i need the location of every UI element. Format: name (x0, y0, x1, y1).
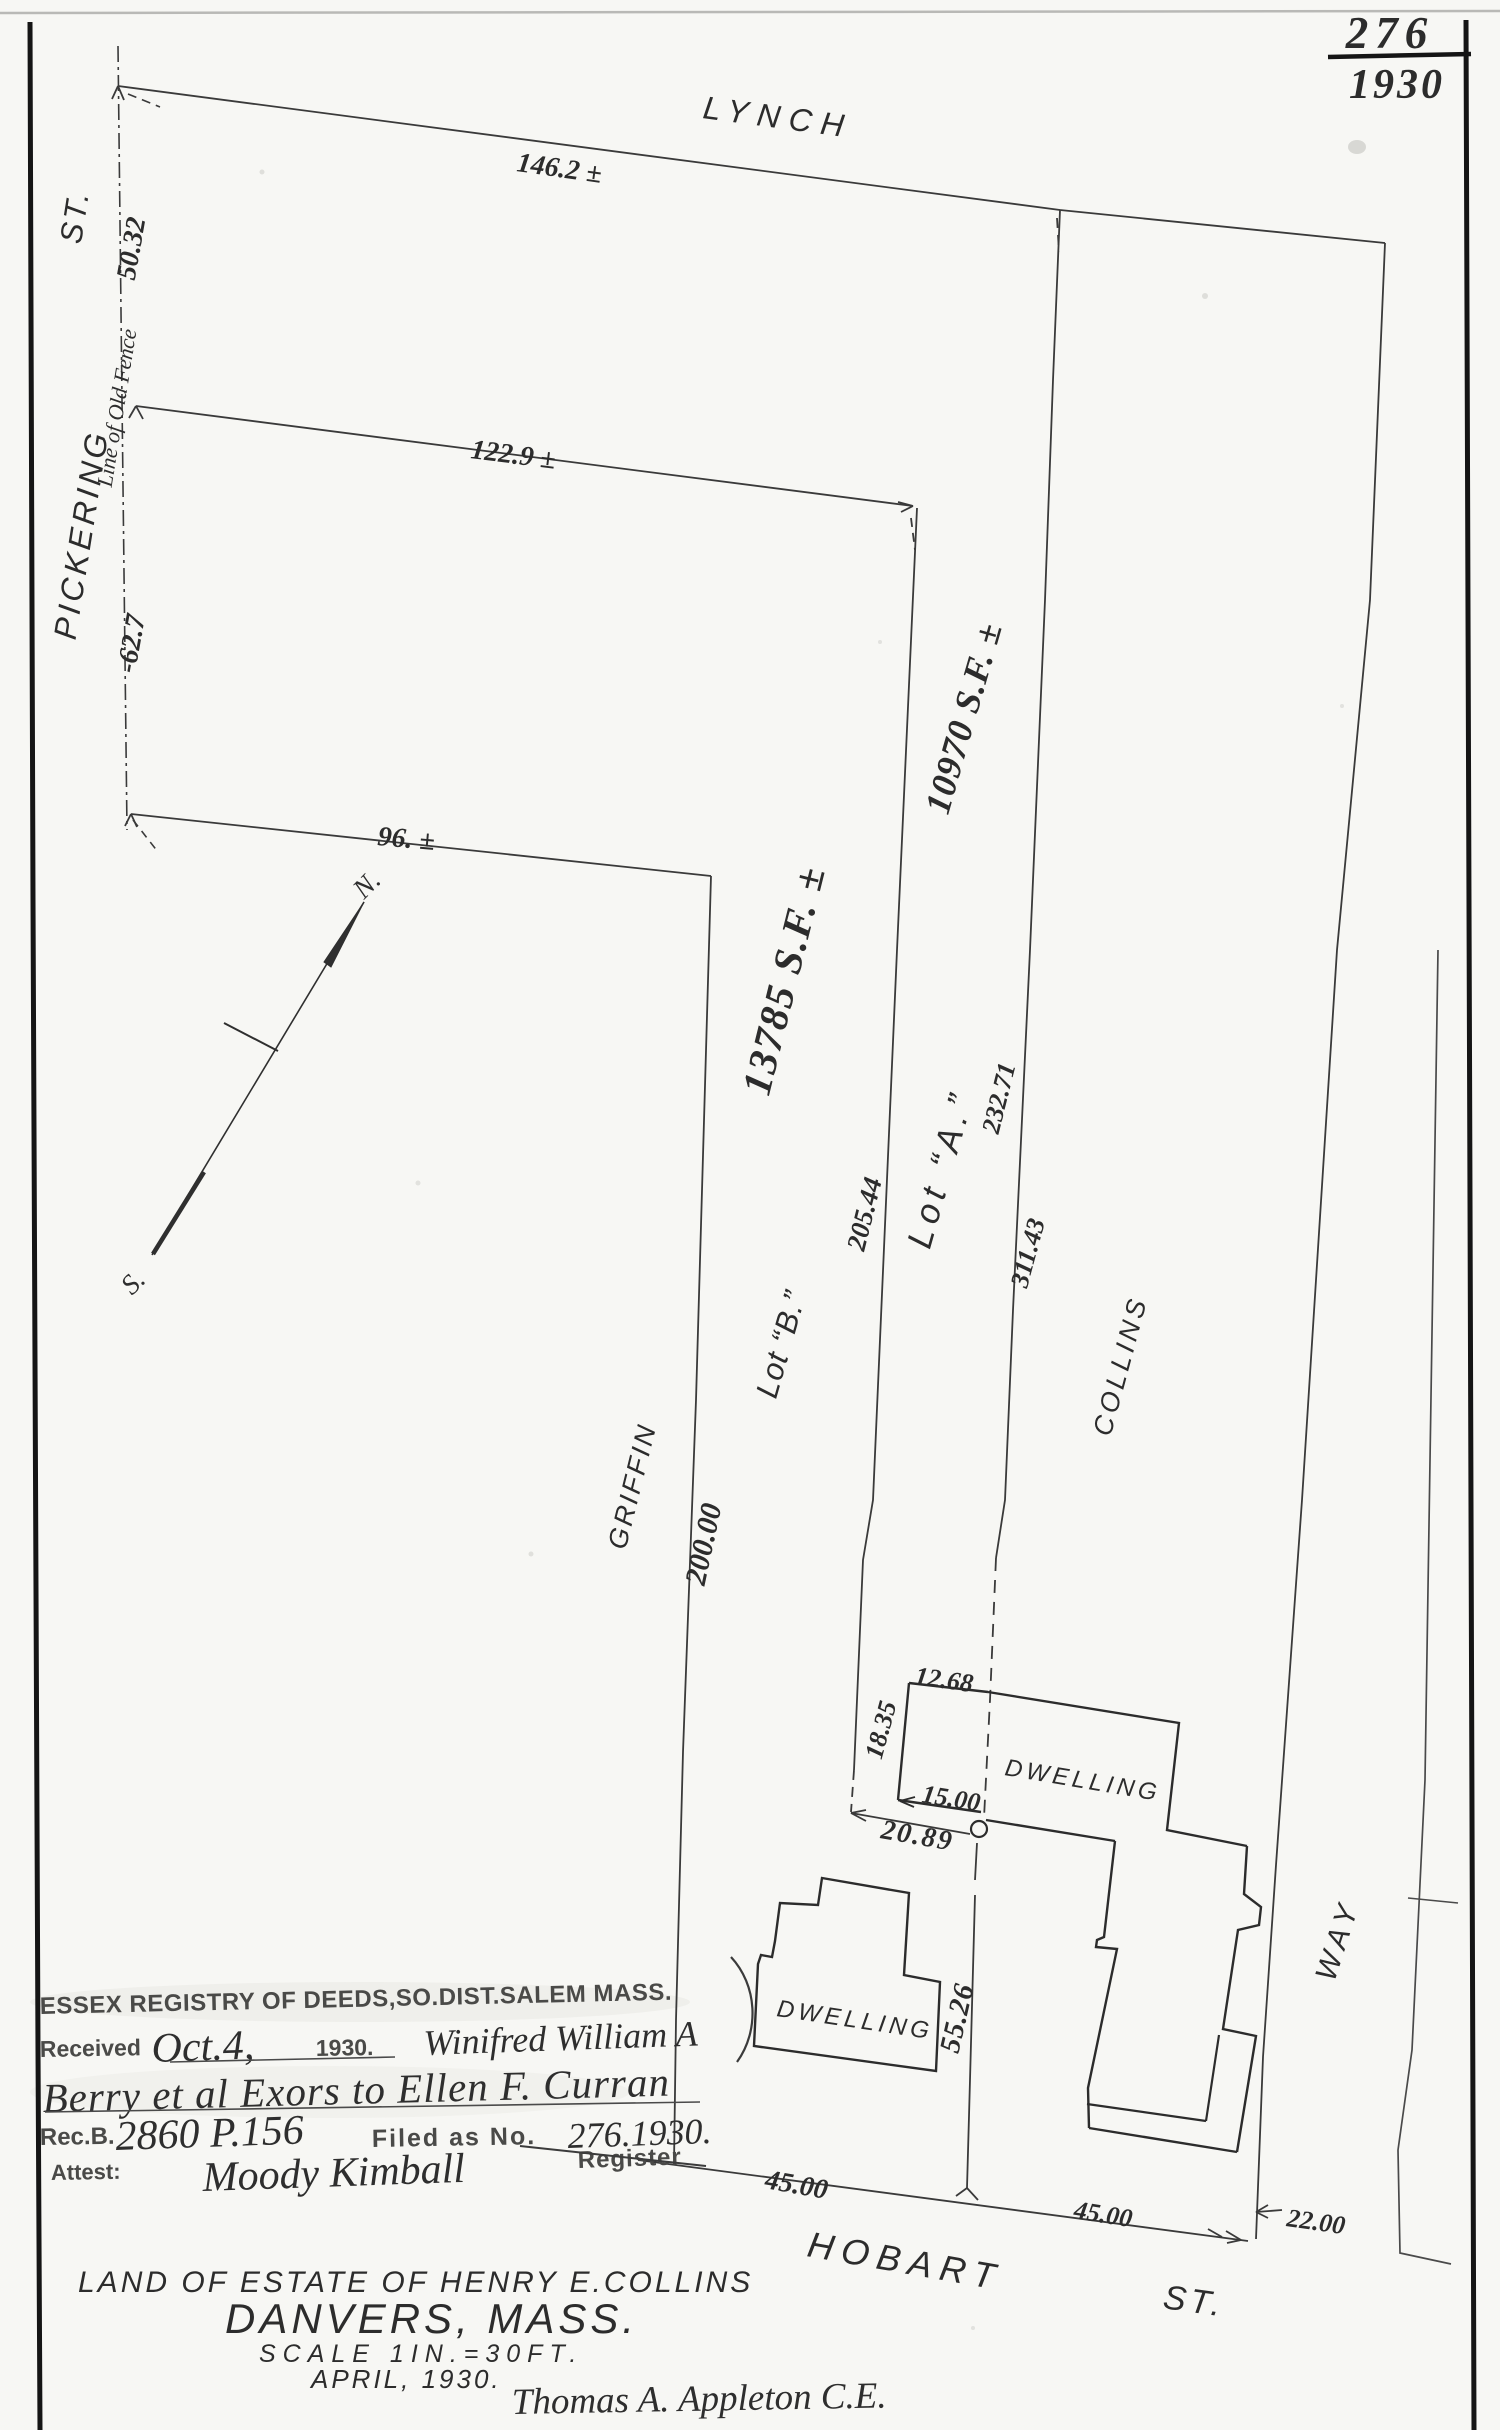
svg-text:1930: 1930 (1349, 62, 1445, 108)
svg-text:Moody Kimball: Moody Kimball (201, 2146, 466, 2201)
svg-text:Thomas A. Appleton C.E.: Thomas A. Appleton C.E. (511, 2375, 886, 2423)
svg-text:Received: Received (40, 2034, 141, 2062)
svg-text:Oct.4,: Oct.4, (151, 2022, 255, 2072)
svg-text:276: 276 (1345, 8, 1435, 58)
svg-text:Attest:: Attest: (51, 2159, 121, 2185)
svg-text:1930.: 1930. (316, 2034, 374, 2061)
svg-text:APRIL, 1930.: APRIL, 1930. (309, 2364, 502, 2394)
svg-text:96. ±: 96. ± (376, 821, 436, 857)
svg-text:Rec.B.: Rec.B. (40, 2123, 115, 2151)
svg-text:DANVERS, MASS.: DANVERS, MASS. (225, 2295, 638, 2342)
